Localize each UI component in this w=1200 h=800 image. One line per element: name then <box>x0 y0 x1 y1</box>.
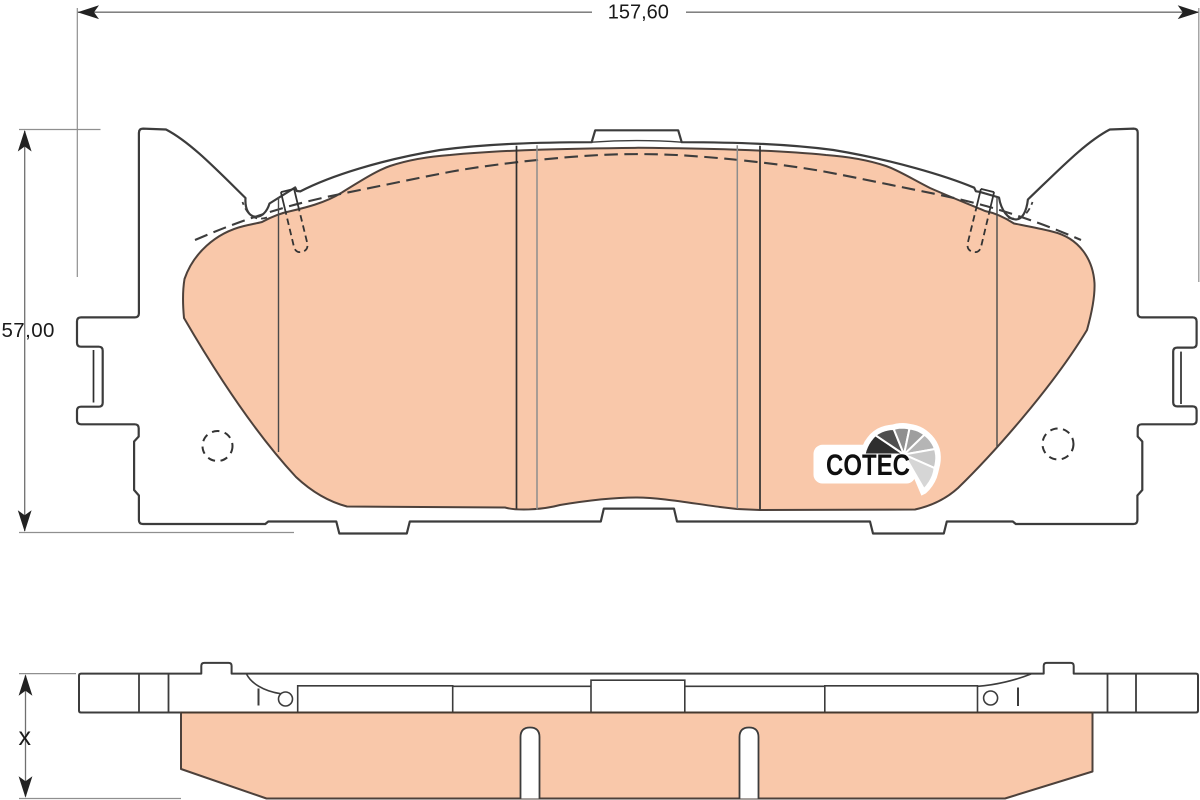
svg-text:57,00: 57,00 <box>2 319 55 342</box>
svg-text:157,60: 157,60 <box>608 1 669 23</box>
svg-text:x: x <box>19 723 32 751</box>
svg-text:COTEC: COTEC <box>826 449 910 482</box>
